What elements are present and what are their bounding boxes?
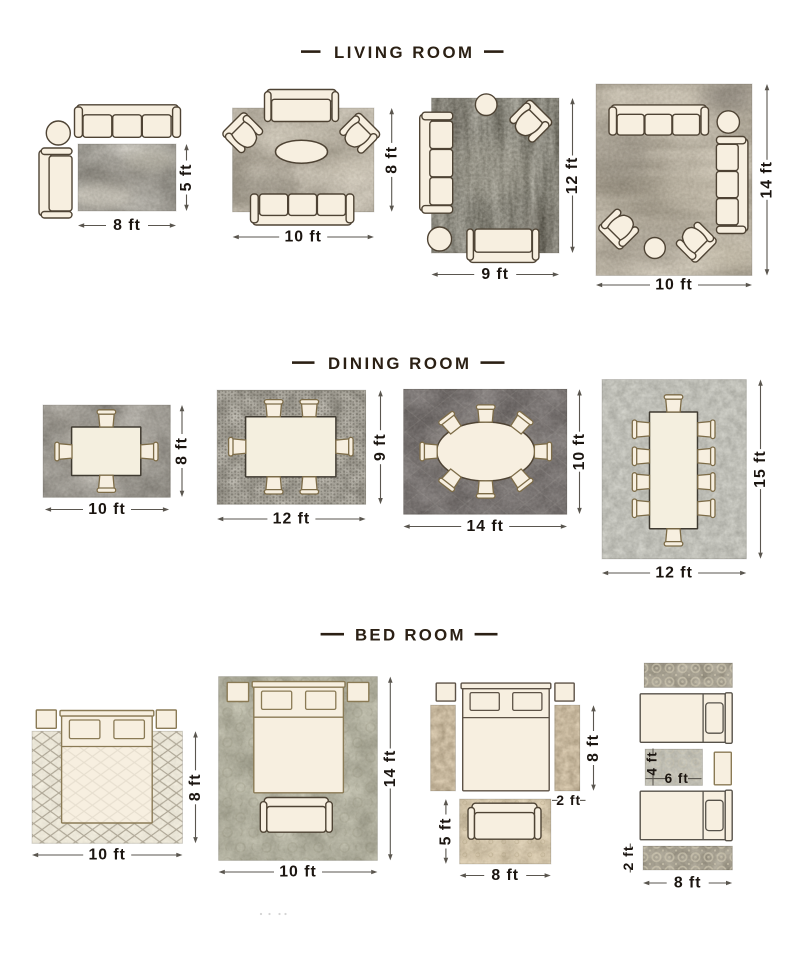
svg-text:8 ft: 8 ft <box>174 437 191 465</box>
svg-text:14 ft: 14 ft <box>759 161 776 198</box>
svg-text:9 ft: 9 ft <box>372 433 389 461</box>
svg-text:10 ft: 10 ft <box>571 433 588 470</box>
svg-text:8 ft: 8 ft <box>491 867 519 884</box>
svg-text:9 ft: 9 ft <box>481 266 509 283</box>
svg-text:8 ft: 8 ft <box>585 734 602 762</box>
svg-text:DINING ROOM: DINING ROOM <box>328 354 469 373</box>
svg-text:5 ft: 5 ft <box>178 164 195 192</box>
svg-text:10 ft: 10 ft <box>655 277 692 294</box>
svg-text:2 ft: 2 ft <box>556 792 581 808</box>
svg-text:15 ft: 15 ft <box>752 450 769 487</box>
svg-text:8 ft: 8 ft <box>383 146 400 174</box>
svg-text:5 ft: 5 ft <box>438 818 455 846</box>
svg-text:8 ft: 8 ft <box>674 875 702 892</box>
svg-text:10 ft: 10 ft <box>279 864 316 881</box>
svg-text:14 ft: 14 ft <box>466 518 503 535</box>
svg-text:6 ft: 6 ft <box>665 771 689 786</box>
svg-text:12 ft: 12 ft <box>273 511 310 528</box>
svg-text:8 ft: 8 ft <box>187 773 204 801</box>
svg-text:2 ft: 2 ft <box>620 846 636 871</box>
svg-text:10 ft: 10 ft <box>88 501 125 518</box>
svg-text:14 ft: 14 ft <box>382 750 399 787</box>
svg-text:8 ft: 8 ft <box>113 217 141 234</box>
svg-text:12 ft: 12 ft <box>655 565 692 582</box>
svg-text:10 ft: 10 ft <box>88 847 125 864</box>
svg-text:10 ft: 10 ft <box>284 229 321 246</box>
svg-text:12 ft: 12 ft <box>564 157 581 194</box>
svg-text:4 ft: 4 ft <box>644 751 659 775</box>
